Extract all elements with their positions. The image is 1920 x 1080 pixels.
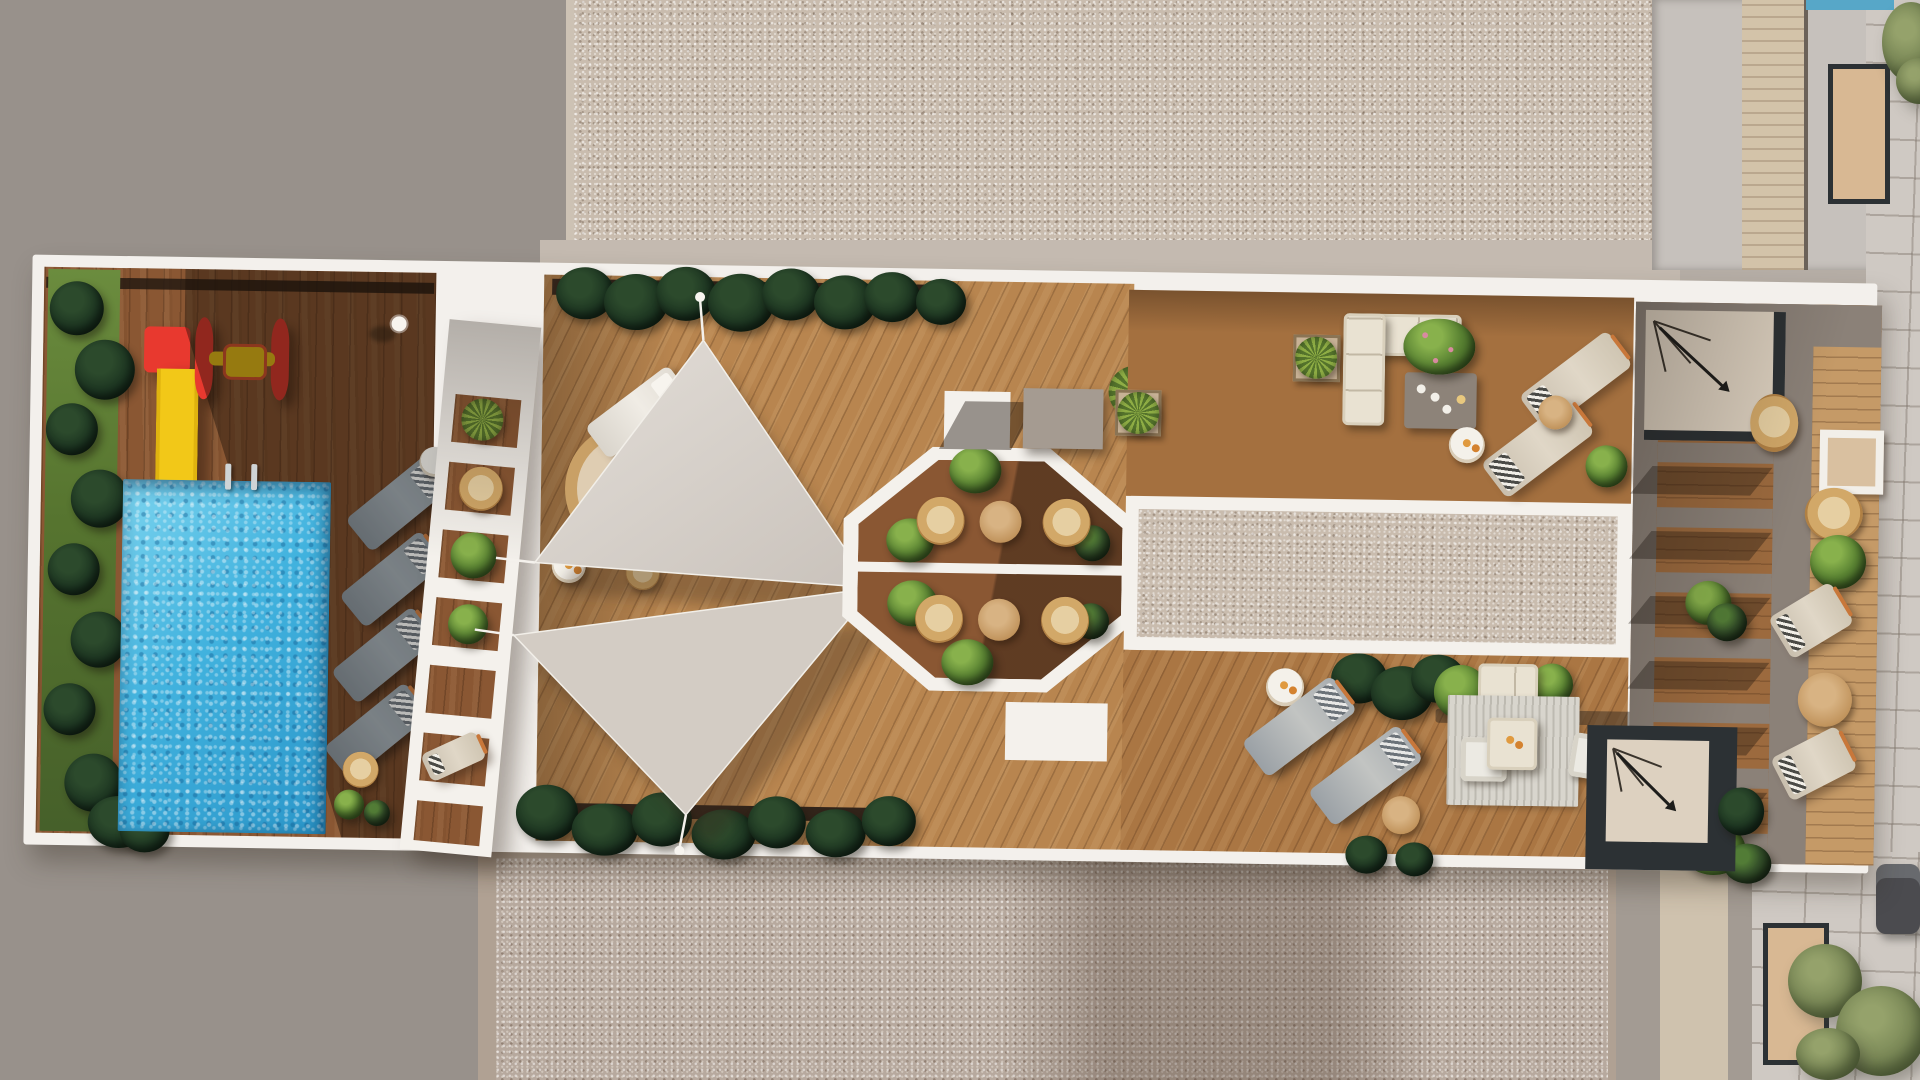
tableware <box>1417 384 1426 393</box>
rooftop-render <box>0 0 1920 1080</box>
parked-car <box>1876 864 1920 934</box>
planter-box <box>1115 390 1162 437</box>
beam-shadow <box>1629 531 1771 561</box>
sail-mast <box>674 846 684 856</box>
deck-chair <box>420 730 487 782</box>
low-table <box>1819 430 1884 495</box>
divider-opening <box>419 733 489 787</box>
yucca-plant <box>1295 336 1338 379</box>
access-path-center <box>1660 840 1728 1080</box>
playground-slide-hood <box>144 326 191 373</box>
beam-shadow <box>1627 661 1769 691</box>
stair-arrow <box>1659 327 1724 388</box>
gravel-roof-top <box>566 0 1686 244</box>
cast-shadow <box>427 319 541 566</box>
planter-box <box>1293 334 1341 382</box>
building-shadow <box>1000 858 1440 1080</box>
coffee-table <box>1487 717 1538 770</box>
neighbour-pool-sliver <box>1806 0 1894 10</box>
hedge-bush <box>805 809 866 858</box>
yucca-plant <box>1117 392 1160 435</box>
sectional-sofa <box>1342 313 1386 426</box>
neighbour-roof-deck-strip <box>1742 0 1808 270</box>
pergola-slat <box>1657 507 1773 529</box>
divider-opening <box>426 665 496 719</box>
street-tree <box>1796 1028 1860 1080</box>
octagon-walkway <box>1005 702 1108 762</box>
pergola-slat <box>1658 442 1774 464</box>
coffee-table <box>1404 372 1477 429</box>
hedge-bush <box>691 809 756 860</box>
gravel-strip <box>1137 509 1618 645</box>
beam-shadow <box>1630 466 1772 496</box>
stairwell <box>1606 739 1710 843</box>
potted-plant <box>446 602 490 646</box>
swimming-pool <box>118 479 332 834</box>
roof-hatch <box>1023 388 1104 449</box>
concrete-plaza-lower <box>0 840 486 1080</box>
lamp-shadow <box>369 326 395 342</box>
divider-opening <box>413 800 482 846</box>
pool-ladder <box>251 464 257 490</box>
pergola-slat <box>1653 702 1769 724</box>
divider-opening <box>432 597 502 651</box>
hedge-bush <box>571 803 638 856</box>
rooftop-terrace <box>23 255 1877 874</box>
skylight <box>1828 64 1890 204</box>
pool-ladder <box>225 464 231 490</box>
pergola-slat <box>1655 637 1771 659</box>
